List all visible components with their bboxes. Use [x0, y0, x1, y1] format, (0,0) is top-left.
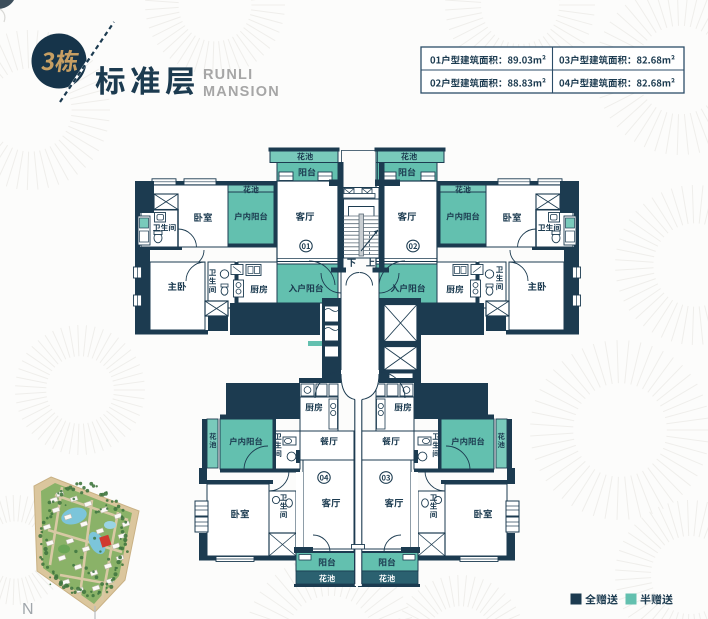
- svg-text:MANSION: MANSION: [203, 84, 280, 100]
- svg-text:N: N: [22, 601, 34, 618]
- svg-text:RUNLI: RUNLI: [203, 67, 253, 83]
